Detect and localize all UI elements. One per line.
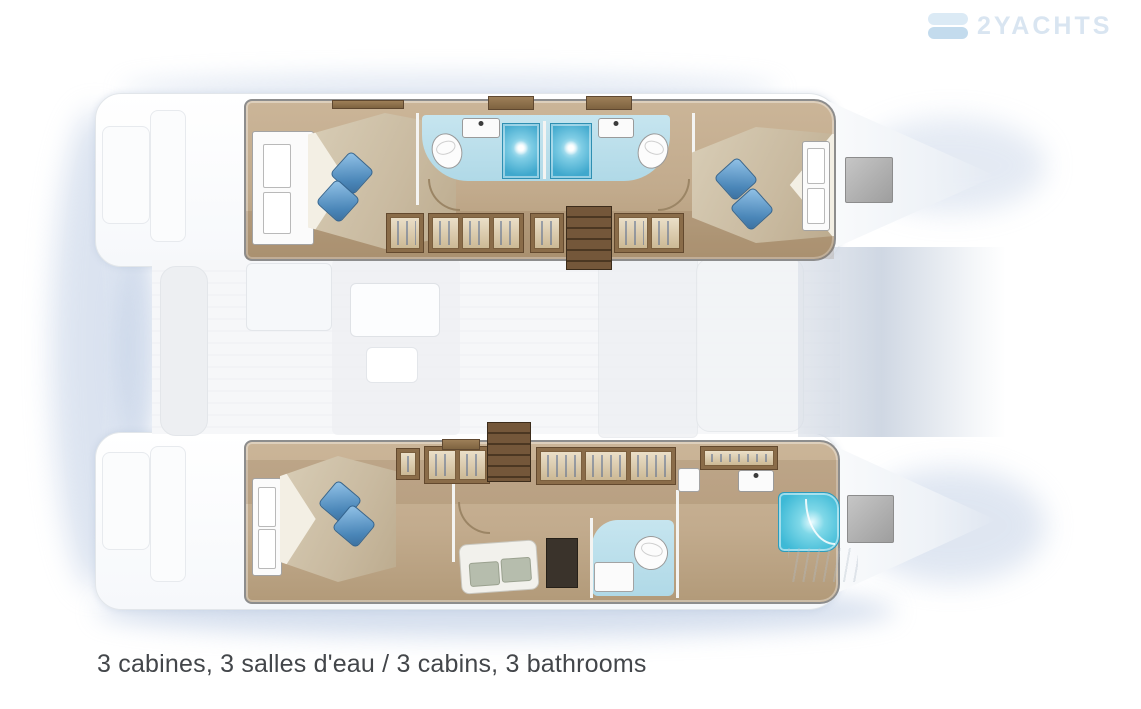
port-hull-interior xyxy=(244,440,840,604)
deck-step-lines xyxy=(788,548,858,582)
wardrobe-panel xyxy=(400,452,416,476)
hull-window xyxy=(258,529,276,569)
logo-wave-bar xyxy=(928,13,968,25)
watermark: 2YACHTS xyxy=(928,12,1112,41)
wardrobe-panel xyxy=(618,217,648,249)
wardrobe-panel xyxy=(493,217,520,249)
stern-step xyxy=(150,110,186,242)
shower xyxy=(502,123,540,179)
vanity-desk xyxy=(546,538,578,588)
stern-step xyxy=(150,446,186,582)
wardrobe-panel xyxy=(462,217,489,249)
watermark-text: 2YACHTS xyxy=(977,12,1112,41)
counter-cabinet xyxy=(700,446,778,470)
bow-deck-hatch xyxy=(845,157,893,203)
wardrobe-cabinet xyxy=(424,446,490,484)
cabin-door-arc xyxy=(658,179,690,211)
yacht-layout-image: 2YACHTS 3 cabines, 3 salles d'eau / 3 ca… xyxy=(0,0,1141,709)
wardrobe-panel xyxy=(432,217,459,249)
wardrobe-panel xyxy=(390,217,420,249)
bow-deck-hatch xyxy=(847,495,894,543)
hull-window xyxy=(807,188,825,224)
seat-cushion xyxy=(469,561,501,587)
layout-caption: 3 cabines, 3 salles d'eau / 3 cabins, 3 … xyxy=(97,650,647,679)
stove-ghost xyxy=(366,347,418,383)
forward-cabin-headboard xyxy=(802,141,830,231)
wardrobe-cabinet xyxy=(536,447,676,485)
wardrobe-panel xyxy=(459,450,487,480)
wardrobe-cabinet xyxy=(386,213,424,253)
wardrobe-panel xyxy=(585,451,627,481)
sink xyxy=(462,118,500,138)
sink xyxy=(598,118,634,138)
hull-window xyxy=(258,487,276,527)
wardrobe-panel xyxy=(534,217,560,249)
galley-sink-ghost xyxy=(350,283,440,337)
shower-partition xyxy=(543,121,546,179)
wardrobe-panel xyxy=(540,451,582,481)
cockpit-table-ghost xyxy=(246,263,332,331)
hull-window xyxy=(263,192,291,234)
owner-cabin-headboard xyxy=(252,478,282,576)
bathroom-wall xyxy=(676,490,679,598)
wardrobe-cabinet xyxy=(396,448,420,480)
hull-window xyxy=(263,144,291,188)
wardrobe-panel xyxy=(428,450,456,480)
cockpit-bench-ghost xyxy=(160,266,208,436)
wardrobe-panel xyxy=(630,451,672,481)
companionway-stairs xyxy=(487,422,531,482)
wardrobe-cabinet xyxy=(614,213,684,253)
foredeck-ghost xyxy=(798,247,1006,437)
cabin-wall xyxy=(416,113,419,205)
aft-cabin-headboard xyxy=(252,131,314,245)
owner-shower xyxy=(778,492,840,552)
stern-step xyxy=(102,126,150,224)
deck-hatch xyxy=(586,96,632,110)
shower-glass-door xyxy=(805,499,835,545)
companionway-stairs xyxy=(566,206,612,270)
bathroom-wall xyxy=(590,518,593,598)
counter-panel xyxy=(704,450,774,466)
wardrobe-cabinet xyxy=(428,213,524,253)
bathroom-counter xyxy=(594,562,634,592)
seat-cushion xyxy=(500,557,532,583)
shower xyxy=(550,123,592,179)
wardrobe-panel xyxy=(651,217,681,249)
saloon-table-ghost xyxy=(598,252,698,438)
logo-wave-bar xyxy=(928,27,968,39)
hull-window xyxy=(807,148,825,184)
deck-hatch xyxy=(488,96,534,110)
sink xyxy=(738,470,774,492)
yachts-logo-icon xyxy=(928,13,968,40)
deck-hatch xyxy=(442,439,480,450)
stern-step xyxy=(102,452,150,550)
starboard-hull-interior xyxy=(244,99,836,261)
cabin-door-arc xyxy=(458,502,490,534)
wardrobe-cabinet xyxy=(530,213,564,253)
deck-hatch xyxy=(332,100,404,109)
saloon-sofa-ghost xyxy=(696,258,804,432)
bed-sheet xyxy=(280,456,322,582)
vanity-seat xyxy=(458,539,539,594)
appliance-locker xyxy=(678,468,700,492)
